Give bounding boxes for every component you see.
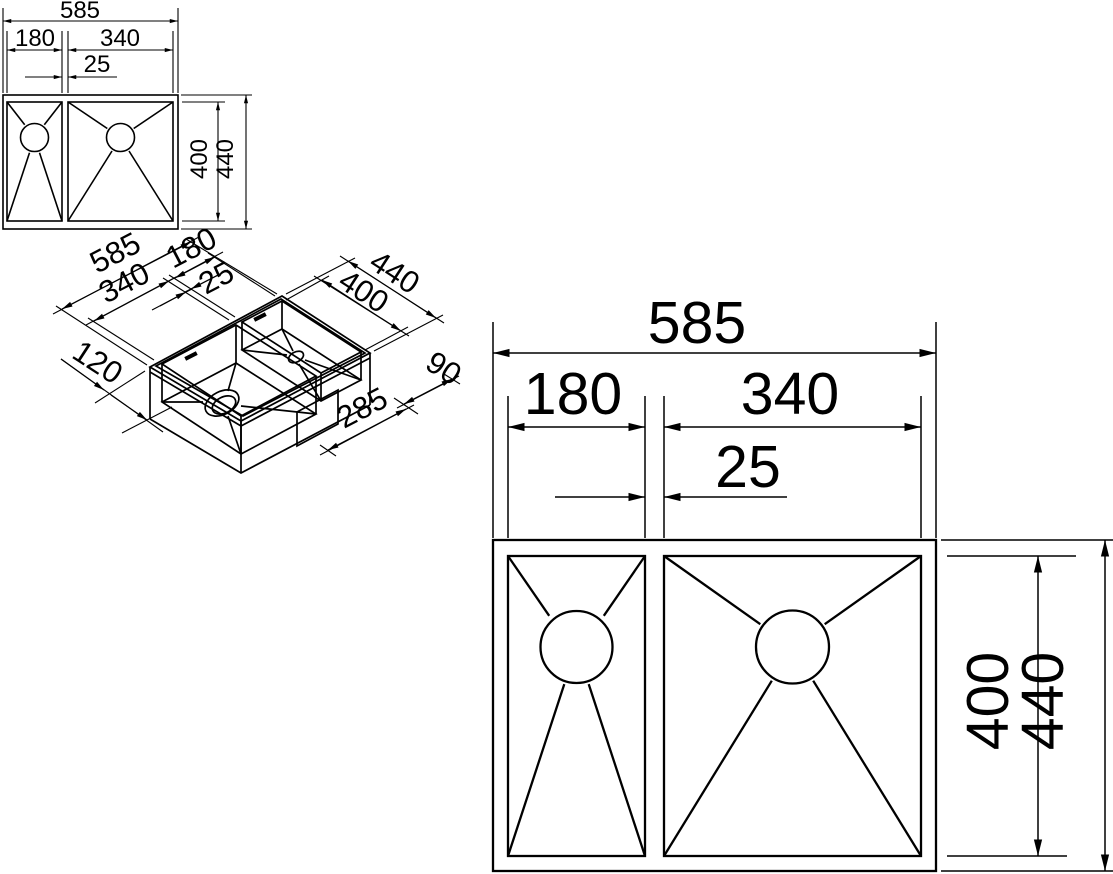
dim-label-285-iso: 285	[331, 380, 393, 435]
dim-label-25: 25	[84, 51, 111, 78]
left-bowl-fold-lines-segment	[589, 684, 645, 856]
left-bowl-fold-lines	[508, 556, 645, 856]
dim-drain-offset-iso-segment	[111, 395, 147, 420]
dim-bowl-depth-iso-segment	[286, 276, 329, 300]
left-drain-circle	[21, 124, 49, 152]
sink-outline-large	[493, 540, 936, 871]
right-bowl-fold-lines-segment	[825, 556, 921, 624]
dim-label-585: 585	[60, 0, 100, 24]
dim-bowl-depth-iso-segment	[365, 327, 408, 350]
right-bowl-fold-lines-segment	[813, 681, 921, 856]
sink-outer-rect	[493, 540, 936, 871]
dim-label-180: 180	[15, 25, 55, 52]
drawing-svg: 585 180 340 25 400 440	[0, 0, 1113, 874]
right-bowl-fold-lines-segment	[129, 151, 173, 221]
left-bowl-fold-lines-segment	[7, 102, 25, 125]
logo-mark-front-rim	[184, 351, 197, 360]
left-bowl-fold-lines	[7, 102, 62, 221]
left-bowl-fold-lines-segment	[508, 556, 549, 616]
top-view-small: 585 180 340 25 400 440	[3, 0, 252, 229]
left-bowl-rect	[7, 102, 62, 221]
dim-left-bowl-large: 180	[508, 361, 645, 538]
dim-drain-offset-iso-segment	[122, 407, 172, 433]
right-drain-circle	[107, 124, 135, 152]
right-bowl-fold-lines	[664, 556, 921, 856]
dim-label-400: 400	[186, 139, 213, 179]
dim-label-180: 180	[524, 361, 622, 427]
dim-clip-width-iso-segment	[394, 398, 418, 414]
dim-label-585: 585	[648, 290, 746, 356]
left-bowl-fold-lines-segment	[40, 153, 63, 221]
dim-divider-iso-segment	[160, 292, 186, 306]
sink-outline-small	[3, 95, 178, 229]
dim-clip-width-iso: 90	[394, 344, 468, 414]
dim-label-120-iso: 120	[66, 333, 128, 391]
dim-label-90-iso: 90	[420, 344, 468, 392]
right-bowl-rect	[664, 556, 921, 856]
dim-label-340: 340	[741, 361, 839, 427]
outer-shell-segment	[150, 372, 241, 426]
left-drain-circle	[541, 611, 613, 683]
left-bowl-fold-lines-segment	[604, 556, 645, 616]
dim-drain-offset-iso: 120	[61, 333, 172, 433]
left-bowl-fold-lines-segment	[7, 153, 30, 221]
left-bowl-fold-lines-segment	[508, 684, 564, 856]
right-bowl-fold-lines	[68, 102, 173, 221]
top-view-large: 585 180 340 25 400 440	[493, 290, 1113, 871]
right-bowl-fold-lines-segment	[68, 151, 112, 221]
dim-label-440: 440	[212, 139, 239, 179]
right-bowl-fold-lines-segment	[68, 102, 107, 129]
dim-right-bowl-large: 340	[664, 361, 921, 538]
right-bowl-rect	[68, 102, 173, 221]
technical-drawing-page: 585 180 340 25 400 440	[0, 0, 1113, 874]
right-drain-circle	[756, 611, 829, 684]
dim-label-440: 440	[1010, 652, 1076, 750]
dim-label-340: 340	[100, 25, 140, 52]
isometric-view: 585 340 180 25 440	[53, 220, 468, 473]
right-bowl-fold-lines-segment	[134, 102, 173, 129]
sink-outer-rect	[3, 95, 178, 229]
right-bowl-fold-lines-segment	[664, 681, 772, 856]
left-bowl-rect	[508, 556, 645, 856]
left-bowl-fold-lines-segment	[44, 102, 62, 125]
dim-label-25: 25	[715, 434, 781, 500]
dim-left-bowl-small: 180	[7, 25, 62, 93]
right-bowl-fold-lines-segment	[664, 556, 760, 624]
dim-divider-large: 25	[555, 434, 787, 500]
dim-divider-small: 25	[25, 51, 117, 78]
